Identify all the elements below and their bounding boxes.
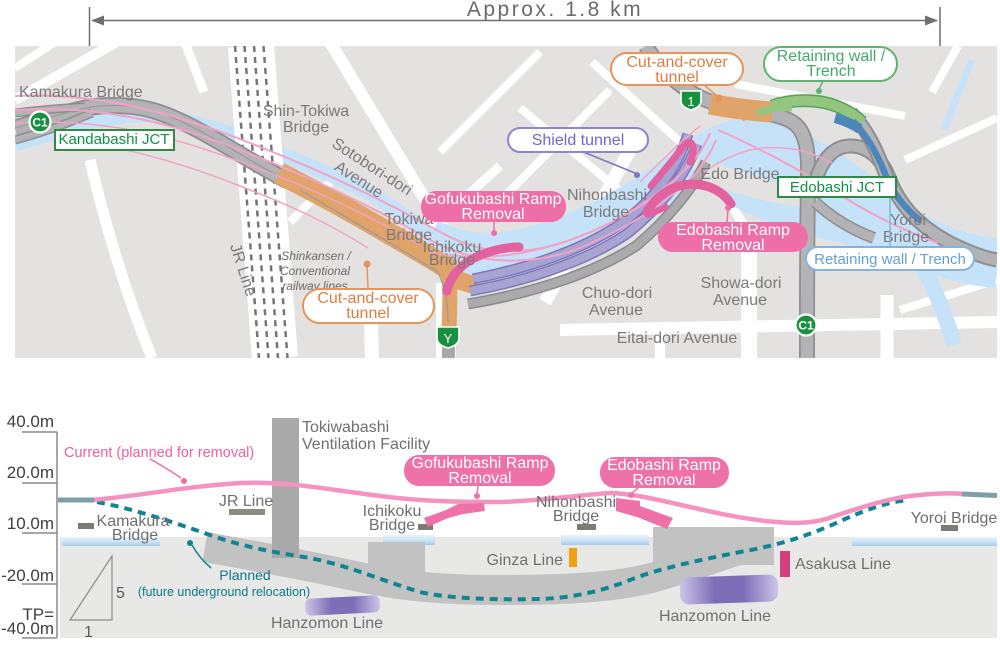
svg-text:Shinkansen /: Shinkansen / (281, 249, 352, 263)
svg-text:Ventilation Facility: Ventilation Facility (302, 436, 430, 453)
svg-text:Yoroi Bridge: Yoroi Bridge (911, 510, 998, 527)
svg-text:Chuo-dori: Chuo-dori (582, 285, 652, 302)
svg-text:JR Line: JR Line (219, 493, 273, 510)
svg-text:40.0m: 40.0m (7, 412, 54, 431)
svg-text:1: 1 (687, 94, 694, 109)
svg-text:Removal: Removal (632, 472, 695, 489)
svg-text:Conventional: Conventional (280, 264, 350, 278)
svg-text:tunnel: tunnel (346, 305, 390, 322)
svg-text:Shin-Tokiwa: Shin-Tokiwa (263, 103, 349, 120)
svg-text:Y: Y (444, 331, 453, 346)
svg-text:Shield tunnel: Shield tunnel (532, 132, 625, 149)
svg-text:Approx. 1.8 km: Approx. 1.8 km (467, 0, 643, 21)
svg-text:Bridge: Bridge (583, 204, 629, 221)
svg-text:Asakusa Line: Asakusa Line (795, 556, 891, 573)
svg-text:Bridge: Bridge (429, 252, 475, 269)
svg-text:Showa-dori: Showa-dori (701, 275, 782, 292)
svg-text:Bridge: Bridge (369, 517, 415, 534)
svg-text:Retaining wall / Trench: Retaining wall / Trench (814, 251, 966, 268)
svg-text:C1: C1 (798, 319, 814, 333)
svg-text:Avenue: Avenue (589, 302, 643, 319)
svg-text:C1: C1 (32, 116, 48, 130)
svg-text:Eitai-dori Avenue: Eitai-dori Avenue (617, 330, 738, 347)
svg-text:Bridge: Bridge (283, 119, 329, 136)
svg-text:Edo Bridge: Edo Bridge (700, 166, 779, 183)
svg-text:Yoroi: Yoroi (890, 212, 926, 229)
svg-text:Removal: Removal (461, 206, 524, 223)
svg-text:tunnel: tunnel (655, 69, 699, 86)
svg-text:5: 5 (116, 585, 125, 602)
svg-text:Removal: Removal (701, 237, 764, 254)
svg-text:Removal: Removal (448, 470, 511, 487)
svg-text:Bridge: Bridge (112, 527, 158, 544)
svg-text:Bridge: Bridge (553, 508, 599, 525)
svg-text:Planned: Planned (219, 567, 270, 583)
svg-text:Tokiwabashi: Tokiwabashi (302, 419, 389, 436)
svg-text:Kandabashi JCT: Kandabashi JCT (59, 131, 170, 148)
svg-text:Kamakura Bridge: Kamakura Bridge (19, 84, 143, 101)
svg-text:Hanzomon Line: Hanzomon Line (271, 615, 383, 632)
svg-text:Current (planned for removal): Current (planned for removal) (64, 445, 254, 461)
svg-text:Trench: Trench (806, 63, 855, 80)
svg-text:(future underground relocation: (future underground relocation) (138, 585, 310, 599)
svg-text:Hanzomon Line: Hanzomon Line (659, 608, 771, 625)
svg-text:Avenue: Avenue (713, 292, 767, 309)
svg-text:10.0m: 10.0m (7, 514, 54, 533)
svg-text:20.0m: 20.0m (7, 463, 54, 482)
svg-text:1: 1 (84, 624, 93, 641)
svg-text:Edobashi JCT: Edobashi JCT (790, 179, 884, 196)
svg-text:Ginza Line: Ginza Line (487, 552, 564, 569)
svg-text:-40.0m: -40.0m (1, 619, 54, 638)
svg-text:Nihonbashi: Nihonbashi (567, 187, 647, 204)
svg-text:-20.0m: -20.0m (1, 566, 54, 585)
